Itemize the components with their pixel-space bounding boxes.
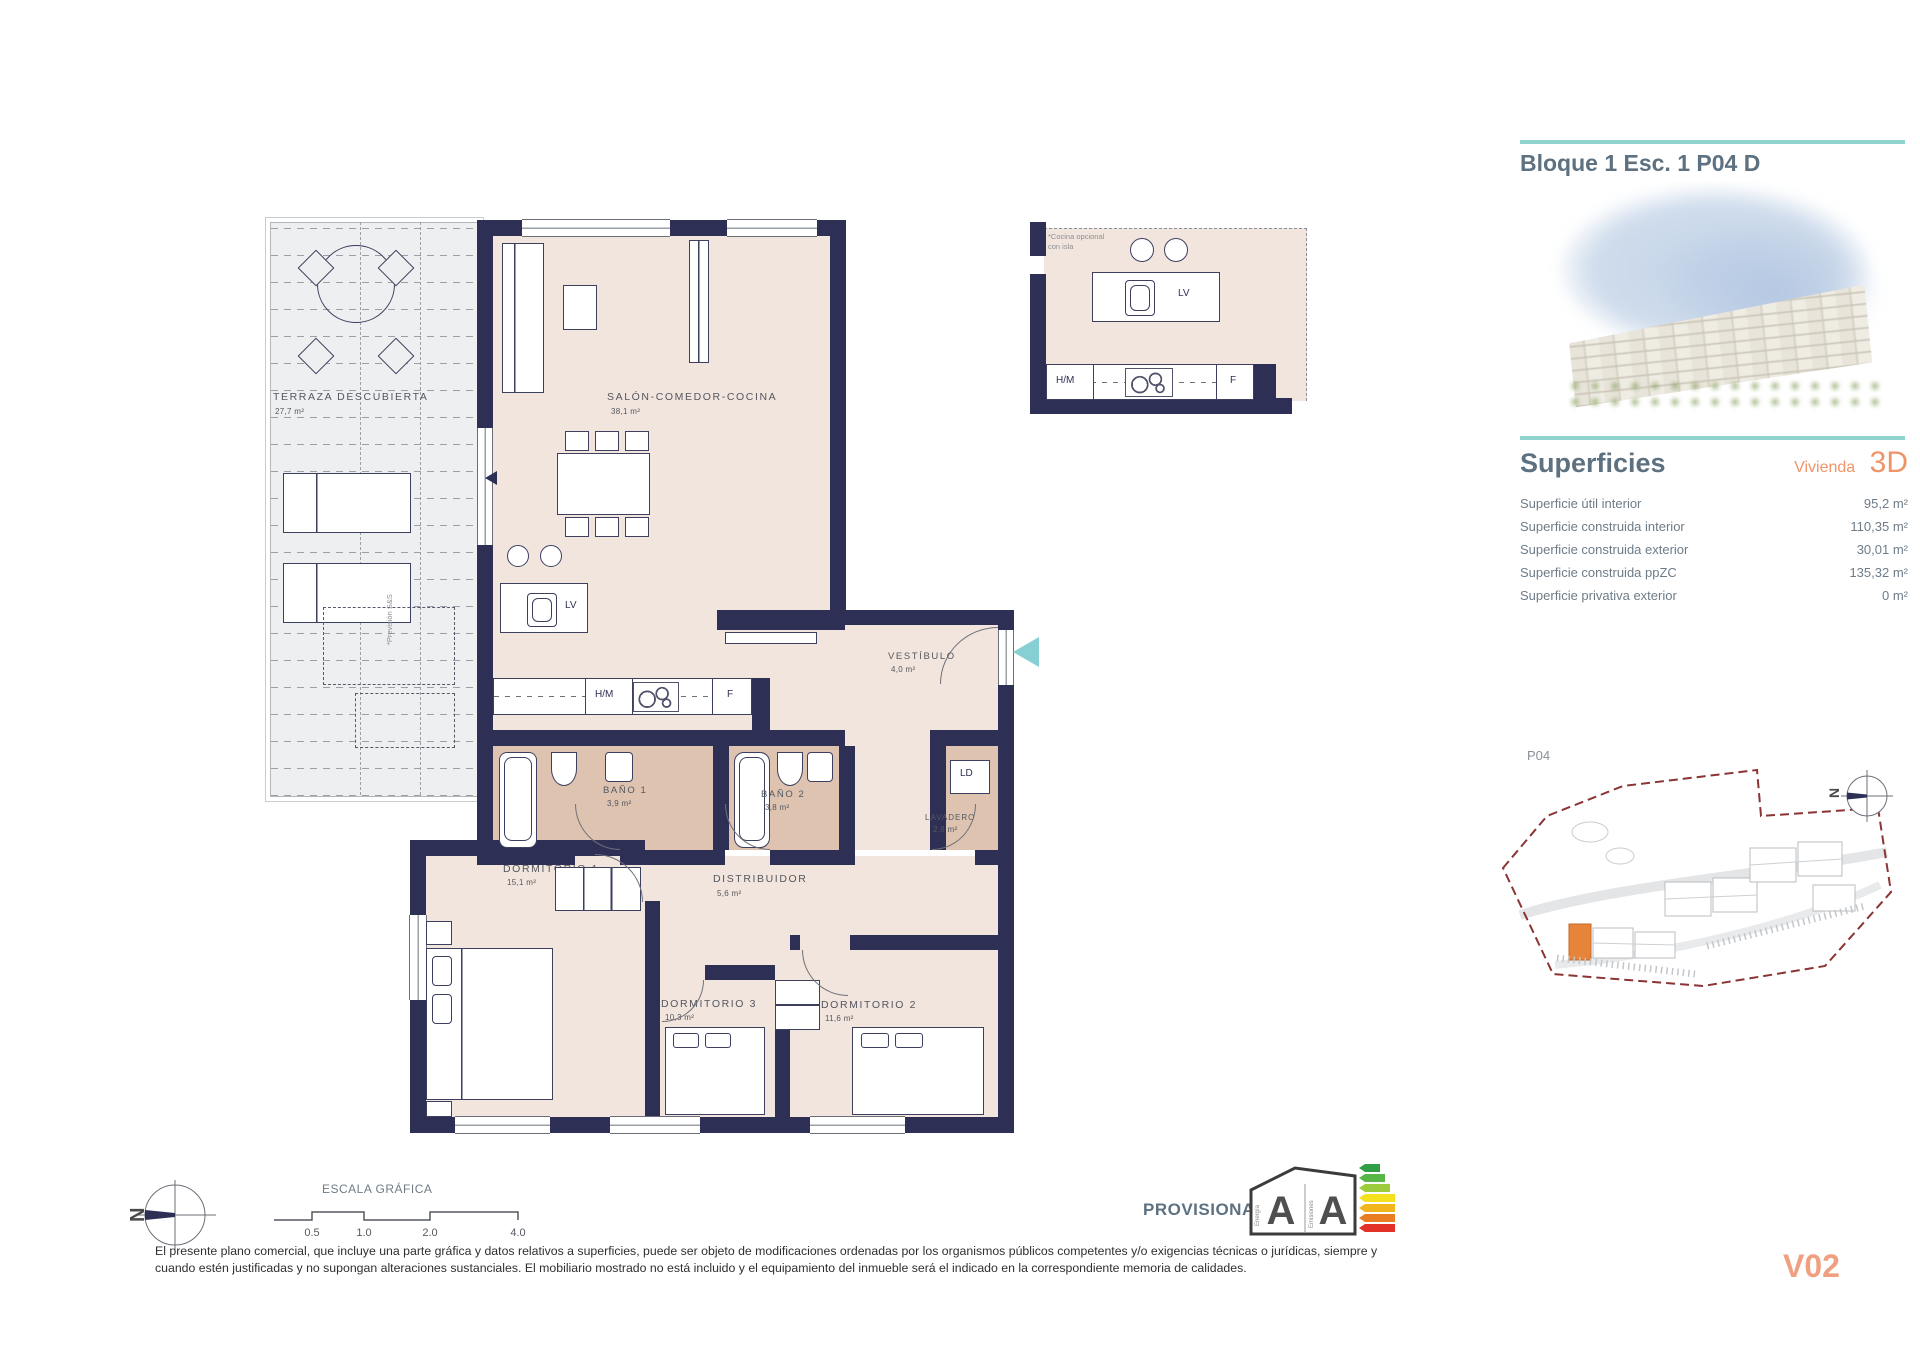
room-area-distribuidor: 5,6 m²: [717, 889, 741, 898]
vivienda-label: Vivienda: [1794, 459, 1855, 476]
wall: [790, 935, 800, 950]
dining-chair: [565, 431, 589, 451]
toilet: [777, 752, 803, 786]
energy-bar-b: [1359, 1174, 1385, 1182]
wall: [717, 610, 845, 630]
room-area-dormitorio2: 11,6 m²: [825, 1014, 854, 1023]
kitchen-stool: [540, 545, 562, 567]
energy-bar-f: [1359, 1214, 1395, 1222]
kitchen-stool: [1164, 238, 1188, 262]
vivienda-group: Vivienda 3D: [1794, 446, 1908, 480]
fridge-label: F: [727, 689, 733, 700]
superficies-header: Superficies Vivienda 3D: [1520, 446, 1908, 480]
row-value: 110,35 m²: [1850, 515, 1908, 538]
washbasin: [605, 752, 633, 782]
washer-dryer-label: LD: [960, 768, 973, 779]
pillow: [432, 956, 452, 986]
wall: [845, 610, 1014, 625]
dining-chair: [625, 431, 649, 451]
unit-code: 3D: [1870, 446, 1908, 479]
superficies-table: Superficie útil interior 95,2 m² Superfi…: [1520, 492, 1908, 607]
tub-basin: [504, 757, 532, 841]
window: [610, 1116, 700, 1134]
render-greenery: [1567, 378, 1879, 408]
row-label: Superficie útil interior: [1520, 492, 1641, 515]
pillow: [432, 994, 452, 1024]
dining-table: [557, 453, 650, 515]
window: [522, 219, 670, 237]
superficies-heading: Superficies: [1520, 448, 1666, 479]
room-label-bano2: BAÑO 2: [761, 789, 805, 800]
terrace-table: [317, 245, 395, 323]
room-area-salon: 38,1 m²: [611, 407, 640, 416]
main-floorplan: TERRAZA DESCUBIERTA 27,7 m² *Previsión S…: [155, 215, 1035, 1140]
compass-north-label: N: [128, 1208, 149, 1222]
header-rule: [1520, 140, 1905, 144]
site-pond: [1606, 848, 1634, 864]
section-rule: [1520, 436, 1905, 440]
disclaimer-line: cuando estén justificadas y no supongan …: [155, 1260, 1445, 1277]
tv-unit: [689, 240, 709, 363]
pillow: [673, 1033, 699, 1048]
row-value: 30,01 m²: [1857, 538, 1908, 561]
row-label: Superficie construida interior: [1520, 515, 1685, 538]
kitchen-island: [1092, 272, 1220, 322]
scale-tick: 1.0: [356, 1227, 371, 1239]
row-value: 95,2 m²: [1864, 492, 1908, 515]
building-render: [1545, 182, 1895, 434]
scale-bar-title: ESCALA GRÁFICA: [322, 1182, 432, 1196]
pillow: [861, 1033, 889, 1048]
floorplan-page: TERRAZA DESCUBIERTA 27,7 m² *Previsión S…: [0, 0, 1920, 1357]
room-label-vestibulo: VESTÍBULO: [888, 651, 956, 662]
dining-chair: [625, 517, 649, 537]
kitchen-option-detail: *Cocina opcional con isla LV H/M F: [1030, 222, 1320, 418]
wall: [477, 236, 493, 428]
compass-north-label: N: [1826, 788, 1842, 798]
entrance-arrow-icon: [1013, 637, 1039, 667]
kitchen-option-note: con isla: [1048, 242, 1073, 251]
room-area-dormitorio1: 15,1 m²: [507, 878, 536, 887]
table-row: Superficie privativa exterior 0 m²: [1520, 584, 1908, 607]
room-label-terraza: TERRAZA DESCUBIERTA: [273, 391, 428, 403]
cooktop: [1125, 368, 1173, 397]
table-row: Superficie construida interior 110,35 m²: [1520, 515, 1908, 538]
wall: [1030, 274, 1046, 400]
version-label: V02: [1783, 1248, 1840, 1285]
row-label: Superficie privativa exterior: [1520, 584, 1677, 607]
table-row: Superficie útil interior 95,2 m²: [1520, 492, 1908, 515]
wall: [850, 935, 998, 950]
nightstand: [426, 1101, 452, 1117]
fridge-label: F: [1230, 375, 1236, 386]
kitchen-stool: [507, 545, 529, 567]
nightstand: [426, 921, 452, 945]
wall: [705, 965, 775, 980]
disclaimer-line: El presente plano comercial, que incluye…: [155, 1243, 1445, 1260]
closet: [775, 980, 820, 1030]
oven-micro-label: H/M: [595, 689, 613, 700]
row-label: Superficie construida ppZC: [1520, 561, 1677, 584]
dishwasher-label: LV: [1178, 288, 1190, 299]
compass-needle: [145, 1210, 175, 1220]
room-label-salon: SALÓN-COMEDOR-COCINA: [607, 391, 777, 403]
wall: [477, 545, 493, 850]
wall: [1030, 222, 1046, 256]
pillow: [895, 1033, 923, 1048]
bathtub: [499, 752, 537, 848]
wall: [770, 850, 855, 865]
section-arrow-icon: [485, 471, 497, 485]
terrace-pergola-outline: [355, 693, 455, 748]
coffee-table: [563, 285, 597, 330]
energy-letter: A: [1267, 1189, 1296, 1233]
toilet: [551, 752, 577, 786]
wall: [493, 730, 845, 746]
scale-tick: 2.0: [422, 1227, 437, 1239]
sun-lounger: [283, 473, 411, 533]
emissions-letter: A: [1319, 1189, 1348, 1233]
table-row: Superficie construida ppZC 135,32 m²: [1520, 561, 1908, 584]
prevision-note: *Previsión S&S: [385, 594, 394, 645]
dining-chair: [565, 517, 589, 537]
hall-shelf: [725, 632, 817, 644]
terrace-sliding-door: [477, 428, 493, 545]
scale-tick: 0.5: [304, 1227, 319, 1239]
row-value: 135,32 m²: [1849, 561, 1908, 584]
window: [455, 1116, 550, 1134]
oven-micro-label: H/M: [1056, 375, 1074, 386]
sink-basin: [1130, 285, 1150, 311]
wall: [645, 941, 660, 1117]
energy-rating-icon: A A Energía Emisiones: [1243, 1156, 1398, 1244]
emissions-axis-label: Emisiones: [1309, 1200, 1315, 1228]
window: [810, 1116, 905, 1134]
energy-bar-d: [1359, 1194, 1395, 1202]
cooktop: [633, 682, 679, 712]
wall: [839, 746, 855, 850]
entrance-door-opening: [998, 630, 1014, 685]
kitchen-option-note: *Cocina opcional: [1048, 232, 1104, 241]
sofa: [502, 243, 544, 393]
room-label-bano1: BAÑO 1: [603, 785, 647, 796]
energy-bar-g: [1359, 1224, 1395, 1232]
room-label-distribuidor: DISTRIBUIDOR: [713, 873, 807, 885]
page-title: Bloque 1 Esc. 1 P04 D: [1520, 150, 1760, 177]
north-compass-icon: N: [128, 1178, 223, 1253]
dining-chair: [595, 517, 619, 537]
site-building: [1813, 885, 1855, 911]
wall: [1254, 364, 1276, 400]
wall: [1030, 398, 1292, 414]
room-area-terraza: 27,7 m²: [275, 407, 304, 416]
kitchen-stool: [1130, 238, 1154, 262]
window: [409, 915, 427, 1000]
dishwasher-label: LV: [565, 600, 577, 611]
wall: [830, 220, 846, 625]
room-label-dormitorio2: DORMITORIO 2: [821, 999, 917, 1011]
wall: [998, 685, 1014, 1133]
wall: [670, 220, 727, 236]
row-value: 0 m²: [1882, 584, 1908, 607]
table-row: Superficie construida exterior 30,01 m²: [1520, 538, 1908, 561]
energy-bar-c: [1359, 1184, 1390, 1192]
disclaimer-text: El presente plano comercial, que incluye…: [155, 1243, 1445, 1276]
wall: [998, 610, 1014, 630]
wall: [752, 678, 770, 730]
energy-axis-label: Energía: [1255, 1204, 1261, 1226]
wall: [713, 746, 729, 850]
row-label: Superficie construida exterior: [1520, 538, 1688, 561]
washbasin: [807, 752, 833, 782]
site-plan: N: [1495, 760, 1915, 1005]
kitchen-sink: [527, 593, 557, 627]
passage-floor: [845, 730, 930, 850]
site-pond: [1572, 822, 1608, 842]
room-area-vestibulo: 4,0 m²: [891, 665, 915, 674]
sink-basin: [532, 598, 552, 622]
dining-chair: [595, 431, 619, 451]
site-highlighted-unit: [1569, 924, 1591, 960]
energy-bar-e: [1359, 1204, 1395, 1212]
scale-tick: 4.0: [510, 1227, 525, 1239]
window: [727, 219, 817, 237]
wall: [645, 901, 660, 941]
wall: [477, 220, 522, 236]
wall: [775, 1030, 790, 1117]
kitchen-sink: [1125, 280, 1155, 316]
scale-bar-line: [274, 1212, 518, 1220]
energy-bar-a: [1359, 1164, 1380, 1172]
pillow: [705, 1033, 731, 1048]
scale-bar: 0.5 1.0 2.0 4.0: [268, 1202, 528, 1244]
